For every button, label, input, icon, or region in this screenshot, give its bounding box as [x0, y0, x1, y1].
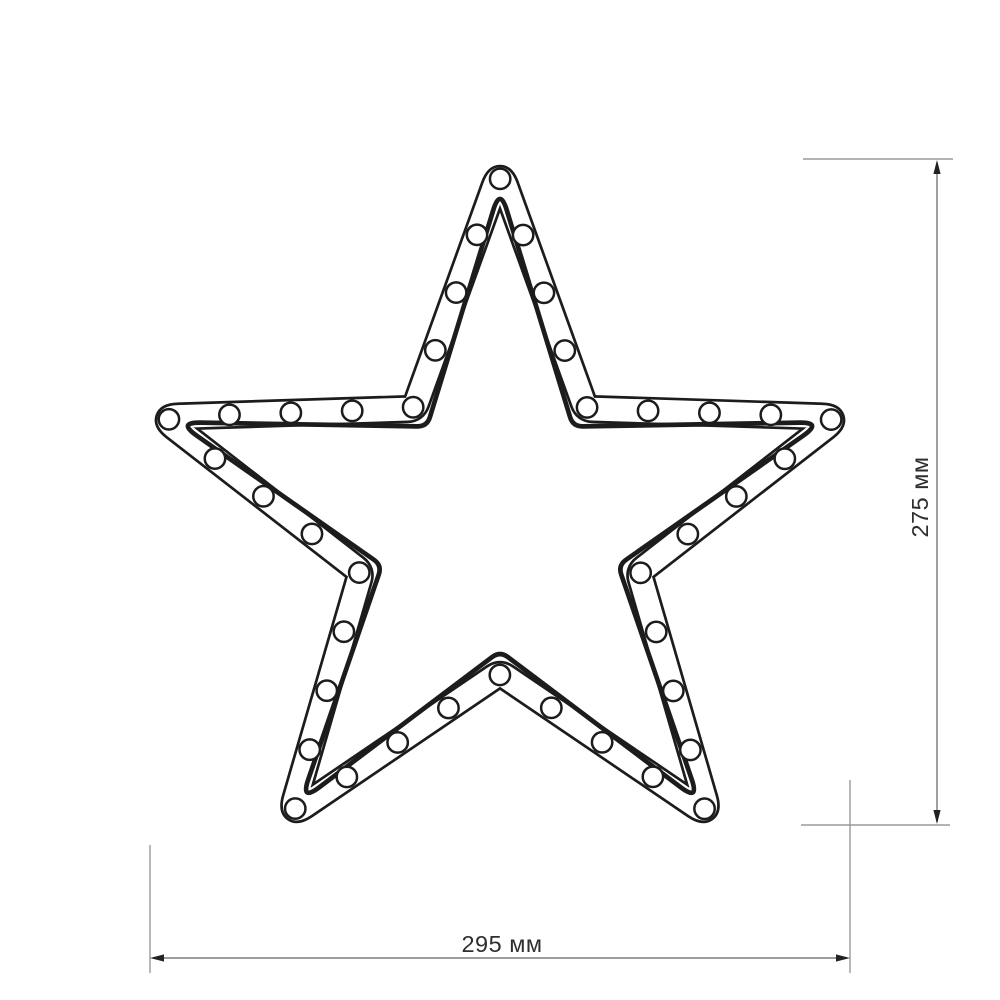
- bulb: [630, 563, 650, 583]
- bulb: [775, 449, 795, 469]
- bulb: [577, 397, 597, 417]
- bulb: [159, 409, 179, 429]
- bulb: [646, 622, 666, 642]
- bulb: [342, 401, 362, 421]
- height-dimension-label: 275 мм: [907, 456, 933, 537]
- bulb: [513, 225, 533, 245]
- bulb: [205, 448, 225, 468]
- bulb: [726, 486, 746, 506]
- bulb: [349, 562, 369, 582]
- star-dimension-drawing: 275 мм 295 мм: [0, 0, 1000, 1000]
- bulb: [281, 403, 301, 423]
- bulb: [694, 799, 714, 819]
- bulb: [643, 767, 663, 787]
- bulb: [699, 403, 719, 423]
- bulb: [219, 405, 239, 425]
- bulb: [555, 340, 575, 360]
- bulb: [302, 524, 322, 544]
- bulb: [534, 283, 554, 303]
- bulb: [678, 524, 698, 544]
- bulb: [680, 740, 700, 760]
- bulb: [387, 732, 407, 752]
- bulb: [438, 698, 458, 718]
- bulb: [317, 680, 337, 700]
- diagram-canvas: 275 мм 295 мм: [0, 0, 1000, 1000]
- bulb: [490, 169, 510, 189]
- bulb: [403, 397, 423, 417]
- bulb: [541, 698, 561, 718]
- bulb: [467, 225, 487, 245]
- bulb: [253, 486, 273, 506]
- bulb: [663, 681, 683, 701]
- bulb: [761, 405, 781, 425]
- bulb: [446, 282, 466, 302]
- bulb: [285, 798, 305, 818]
- bulb: [337, 767, 357, 787]
- bulb: [592, 732, 612, 752]
- bulb: [638, 401, 658, 421]
- width-dimension-label: 295 мм: [461, 931, 542, 957]
- bulb: [490, 665, 510, 685]
- bulb: [300, 739, 320, 759]
- bulb: [334, 621, 354, 641]
- bulb: [821, 409, 841, 429]
- bulb: [425, 340, 445, 360]
